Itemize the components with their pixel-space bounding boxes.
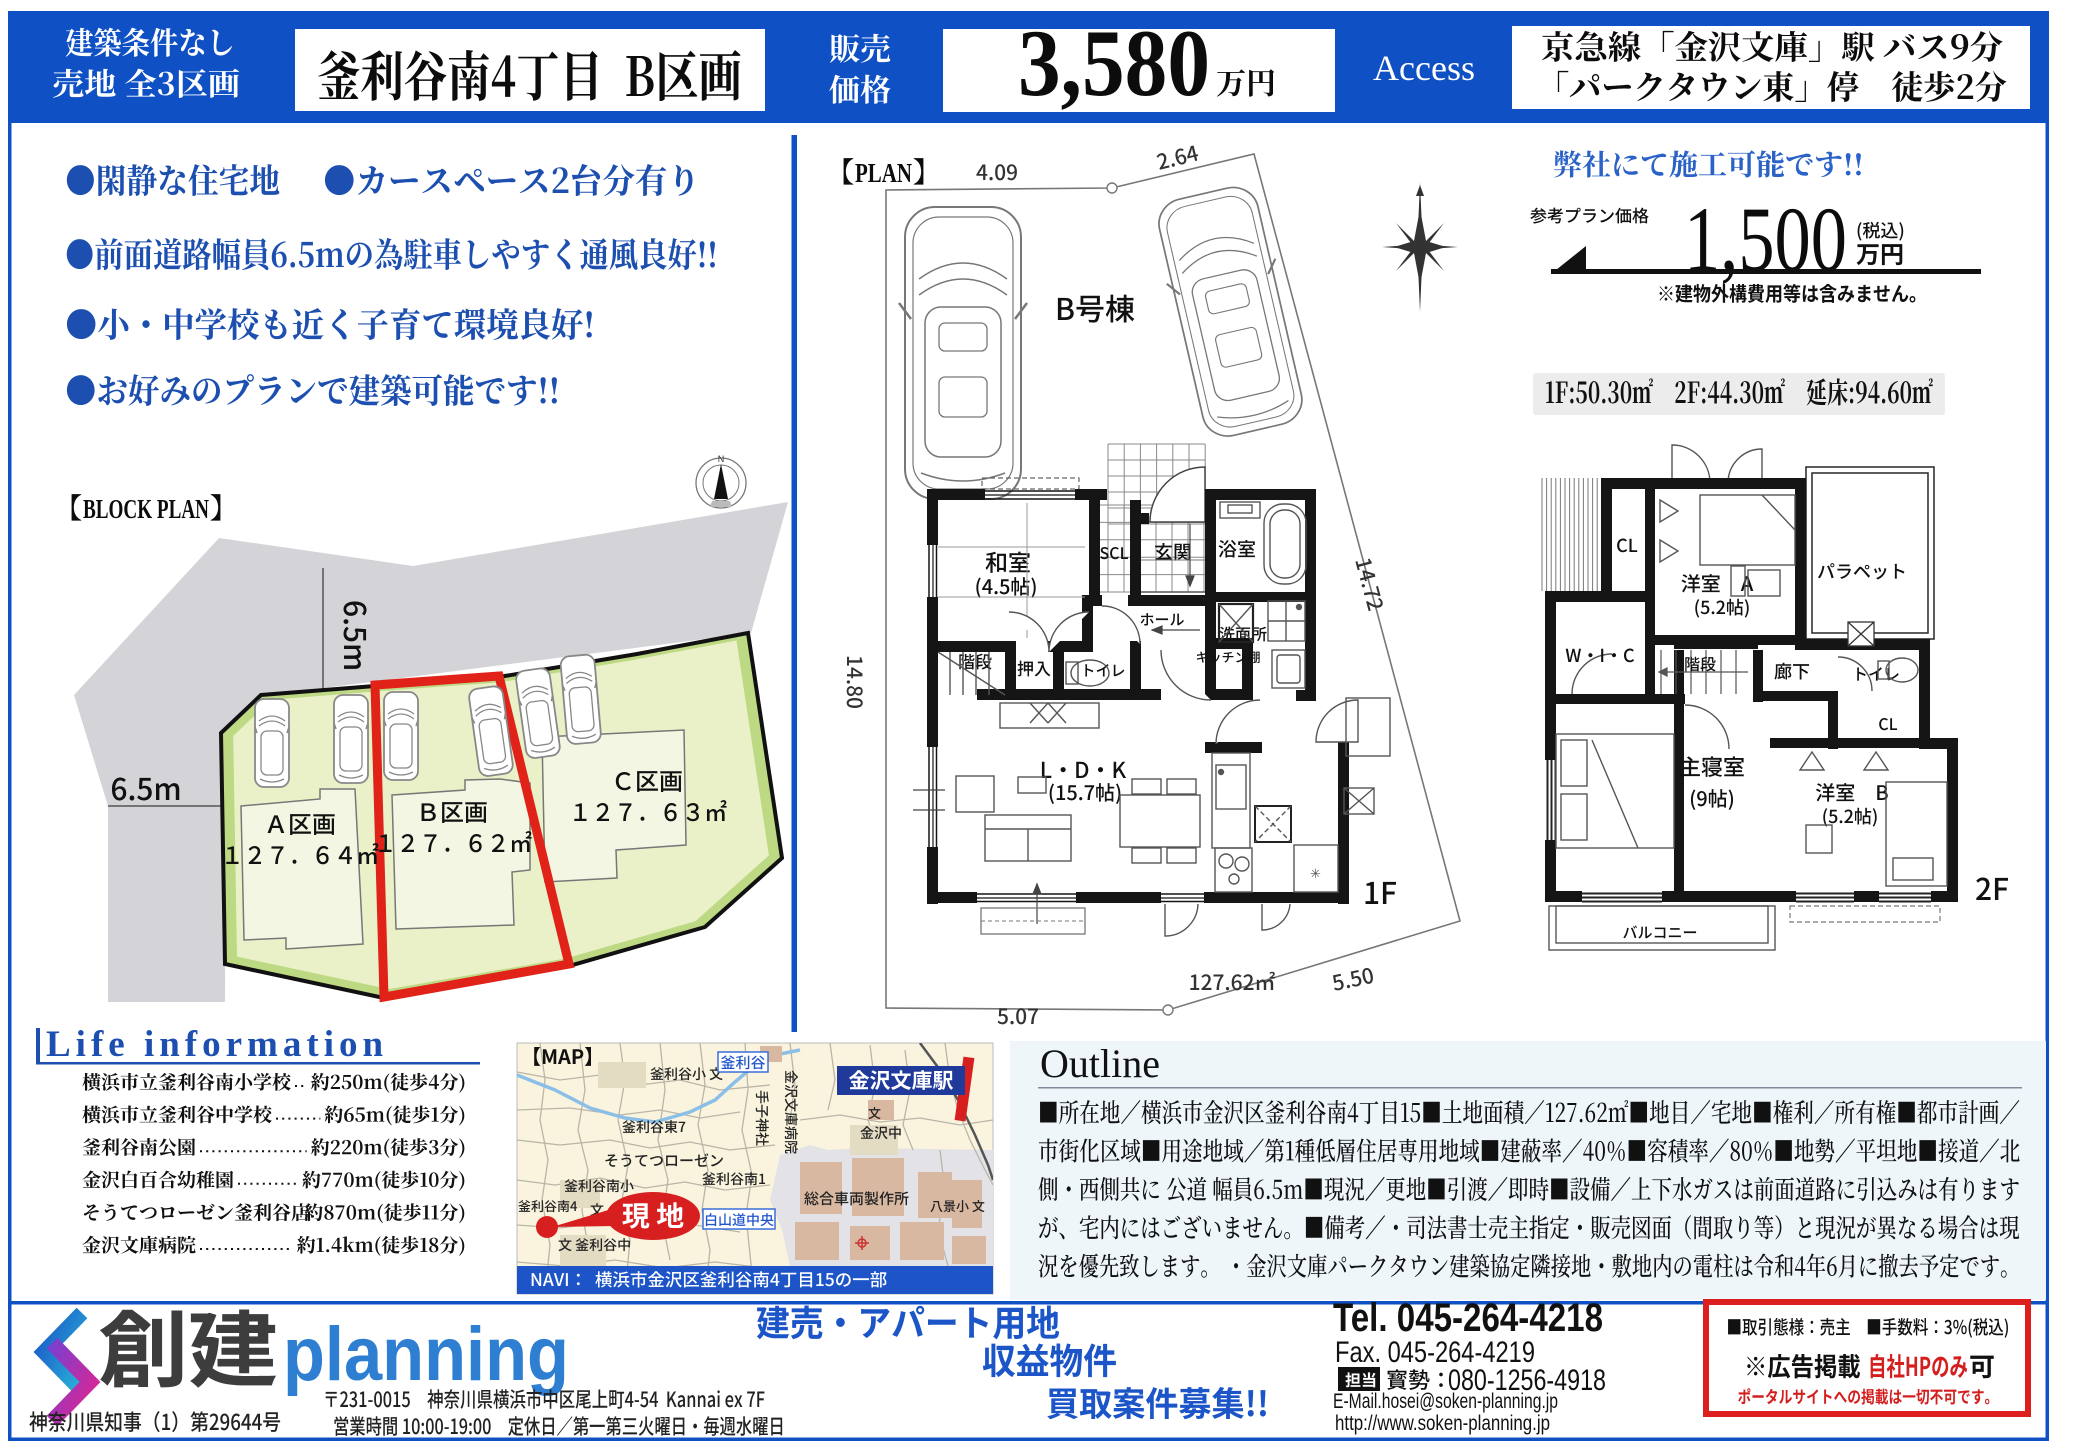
svg-text:3,580: 3,580 bbox=[1018, 10, 1210, 116]
svg-text:PLAN: PLAN bbox=[855, 158, 912, 188]
svg-text:E-Mail.hosei@soken-planning.jp: E-Mail.hosei@soken-planning.jp bbox=[1333, 1390, 1558, 1413]
svg-text:Outline: Outline bbox=[1040, 1041, 1160, 1086]
svg-text:N: N bbox=[718, 454, 725, 464]
svg-text:Access: Access bbox=[1373, 48, 1475, 88]
svg-text:planning: planning bbox=[283, 1312, 569, 1397]
svg-text:✳: ✳ bbox=[1310, 866, 1321, 881]
svg-text:Life information: Life information bbox=[46, 1024, 388, 1065]
svg-text:1,500: 1,500 bbox=[1684, 188, 1847, 290]
svg-text:BLOCK PLAN: BLOCK PLAN bbox=[83, 494, 209, 524]
svg-text:http://www.soken-planning.jp: http://www.soken-planning.jp bbox=[1335, 1412, 1550, 1435]
svg-text:Tel. 045-264-4218: Tel. 045-264-4218 bbox=[1333, 1296, 1603, 1340]
